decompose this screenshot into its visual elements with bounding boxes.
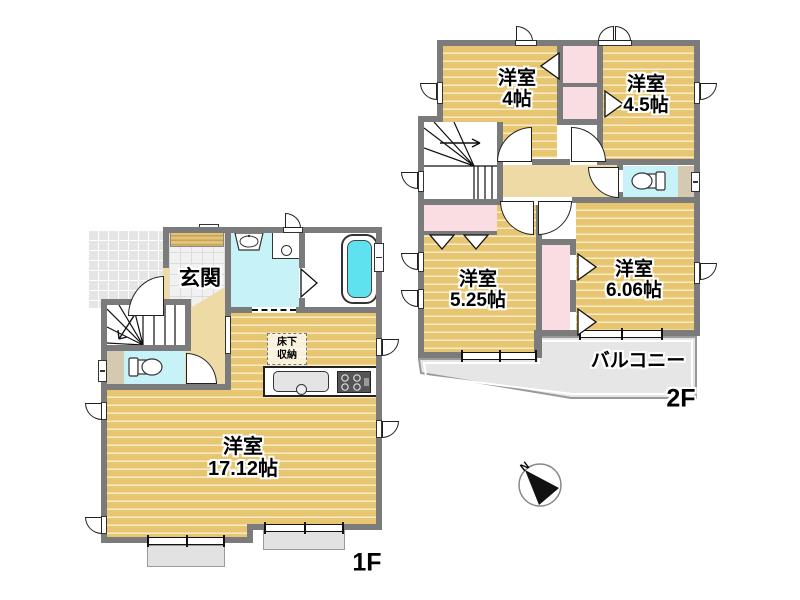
wall xyxy=(296,307,382,313)
casement-window-arc xyxy=(382,421,399,438)
casement-window-arc xyxy=(382,339,399,356)
label-room-4: 洋室 4帖 xyxy=(498,69,536,111)
wall xyxy=(299,227,305,268)
wall xyxy=(418,309,424,358)
label-room-606: 洋室 6.06帖 xyxy=(606,260,662,302)
washing-machine-icon xyxy=(272,232,301,259)
shoe-cabinet xyxy=(170,231,224,247)
window xyxy=(437,82,443,104)
window xyxy=(691,172,700,192)
sliding-window xyxy=(148,537,224,545)
wall xyxy=(101,420,107,516)
floor-storage-label: 床下 収納 xyxy=(267,333,307,365)
wall xyxy=(694,284,700,336)
wall xyxy=(225,227,231,284)
wall xyxy=(532,159,570,165)
wall xyxy=(101,382,107,402)
sliding-window xyxy=(265,524,343,532)
kitchen-faucet xyxy=(296,384,307,395)
wall xyxy=(537,40,598,46)
wall xyxy=(572,197,694,203)
wall xyxy=(557,83,603,87)
closet xyxy=(563,46,597,83)
casement-window-arc xyxy=(285,213,301,228)
washroom-entry-dashed xyxy=(252,309,296,311)
window xyxy=(418,171,424,192)
porch-step xyxy=(147,545,225,567)
casement-window-arc xyxy=(700,83,717,100)
wash-basin-icon xyxy=(233,232,265,252)
wall xyxy=(163,227,283,233)
window xyxy=(98,360,107,382)
toilet-icon-1f xyxy=(128,356,164,378)
wall xyxy=(376,272,382,338)
casement-window-arc xyxy=(420,83,437,100)
casement-window-arc xyxy=(85,403,102,420)
wall xyxy=(376,438,382,530)
wall xyxy=(231,307,252,313)
casement-window-arc xyxy=(401,290,418,307)
wall xyxy=(570,242,576,255)
closet xyxy=(424,205,497,231)
floorplan-canvas: 床下 収納 玄関 洋室 17.12 xyxy=(0,0,800,600)
sliding-window xyxy=(462,352,536,360)
wall xyxy=(437,40,515,46)
wall xyxy=(497,122,503,205)
label-floor-2f: 2F xyxy=(666,385,695,414)
staircase-2f xyxy=(424,122,497,199)
closet-door-icon xyxy=(463,234,489,250)
casement-window-arc xyxy=(401,172,418,189)
wall xyxy=(163,227,169,268)
closet xyxy=(563,87,597,119)
casement-window-arc xyxy=(85,517,102,534)
window xyxy=(418,289,424,309)
wall xyxy=(376,227,382,243)
casement-window-arc xyxy=(516,26,533,41)
folding-door-icon xyxy=(300,268,318,298)
closet xyxy=(542,245,570,333)
room-606-door-arc xyxy=(538,201,572,235)
wall xyxy=(376,356,382,420)
wall xyxy=(694,192,700,262)
wall xyxy=(632,40,700,46)
closet-door-icon xyxy=(429,234,455,250)
wall xyxy=(101,299,107,360)
toilet-icon-2f xyxy=(630,170,666,192)
label-floor-1f: 1F xyxy=(352,549,381,578)
closet-door-icon xyxy=(577,308,597,336)
label-room-45: 洋室 4.5帖 xyxy=(623,75,668,117)
wall xyxy=(694,40,700,82)
wall xyxy=(557,119,603,125)
wall xyxy=(185,299,191,351)
closet-door-icon xyxy=(577,253,597,281)
casement-window-arc xyxy=(401,253,418,270)
kitchen-counter xyxy=(263,366,378,397)
toilet-shelf-1f xyxy=(107,351,124,384)
closet-door-icon xyxy=(540,52,560,80)
wall xyxy=(694,104,700,172)
bathtub xyxy=(341,234,378,304)
closet-door-icon xyxy=(604,90,624,118)
wall xyxy=(418,116,424,171)
casement-window-arc xyxy=(700,263,717,280)
wall xyxy=(303,227,382,233)
sliding-door xyxy=(225,316,231,354)
window xyxy=(418,252,424,272)
gas-stove-icon xyxy=(337,371,371,393)
wall xyxy=(570,280,576,312)
wall xyxy=(418,199,503,205)
label-balcony: バルコニー xyxy=(591,346,686,373)
casement-window-arc xyxy=(598,26,614,41)
wall xyxy=(418,272,424,289)
label-genkan: 玄関 xyxy=(179,262,221,292)
wall xyxy=(101,384,231,390)
label-living-room: 洋室 17.12帖 xyxy=(208,436,278,480)
window xyxy=(374,243,384,272)
wall xyxy=(437,40,443,82)
wall xyxy=(101,345,191,351)
label-room-525: 洋室 5.25帖 xyxy=(450,270,506,312)
casement-window-arc xyxy=(615,26,631,41)
